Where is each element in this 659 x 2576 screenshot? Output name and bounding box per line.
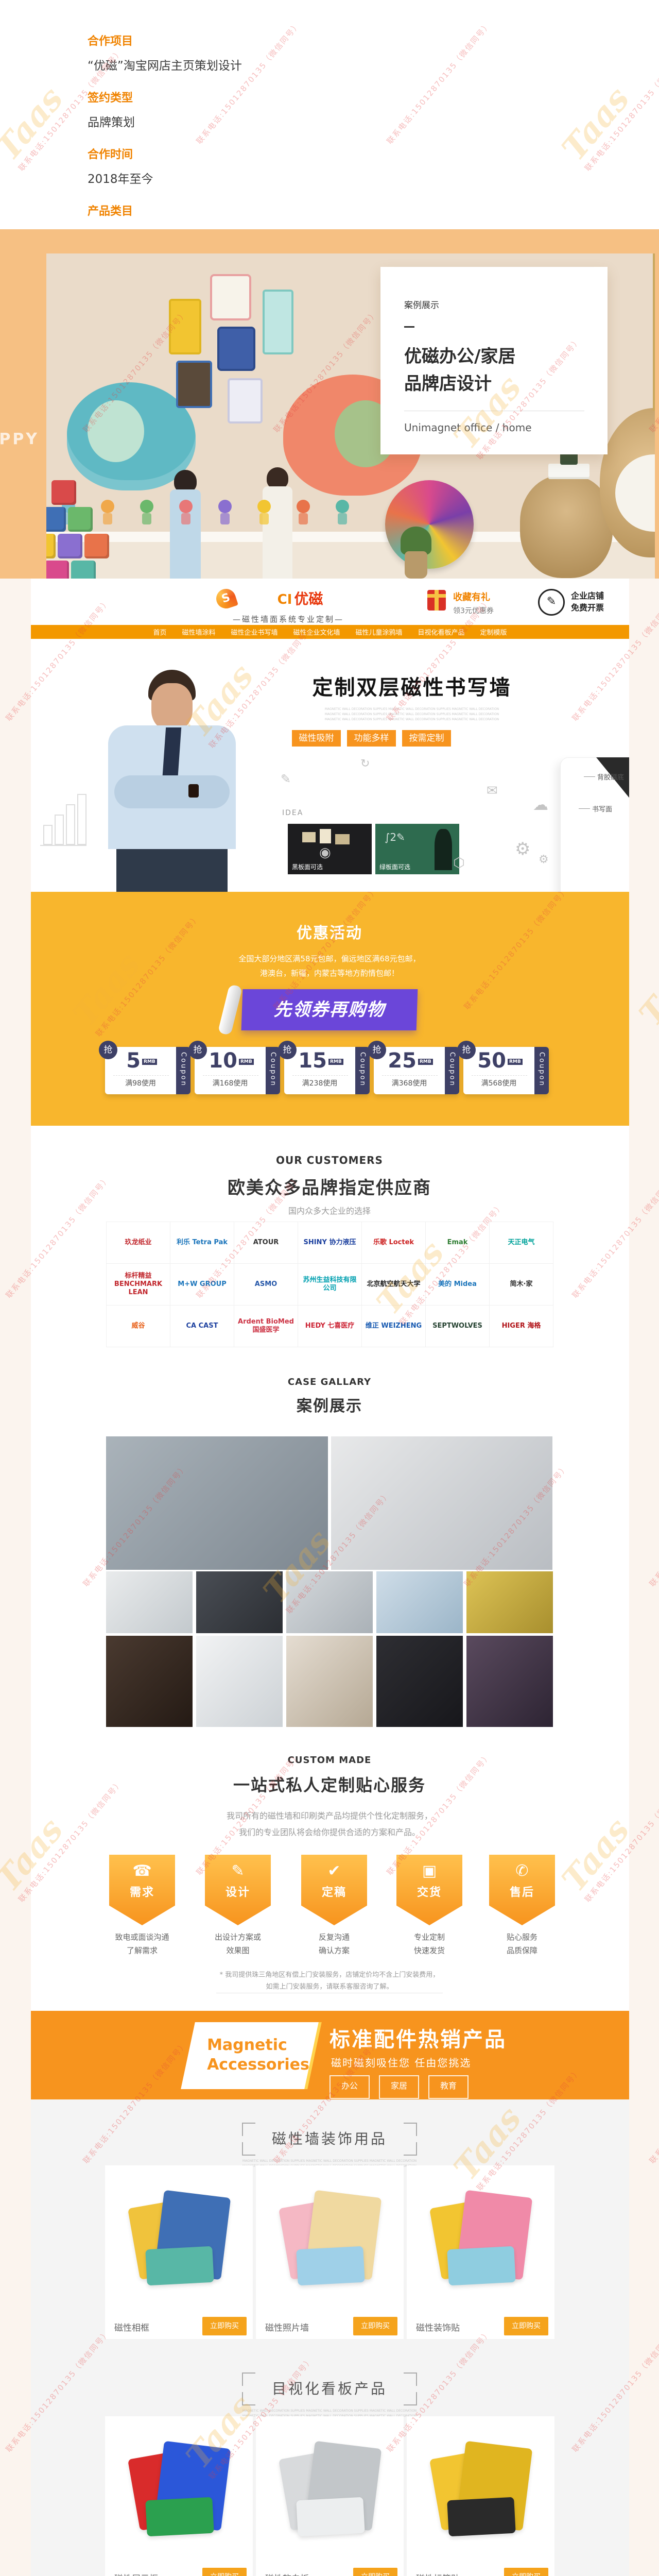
customer-logo: Ardent BioMed 国盛医学 <box>234 1306 298 1347</box>
logo-mark-icon: S <box>214 586 238 611</box>
store-promo-line2: 免费开票 <box>571 602 604 614</box>
coupon-amount: 5RMB <box>113 1049 170 1073</box>
shop-header: S CI优磁 —磁性墙面系统专业定制— 收藏有礼 领3元优惠券 ✎ 企业店铺 免… <box>31 579 629 625</box>
product-caption: 磁性软白板立即购买 <box>256 2564 404 2576</box>
product-name: 磁性照片墙 <box>265 2320 309 2333</box>
case-card-title-line2: 品牌店设计 <box>404 370 584 398</box>
product-section-title: 磁性墙装饰用品 <box>242 2123 417 2156</box>
customer-logo-text: 利乐 Tetra Pak <box>177 1239 228 1247</box>
kid-drawing-figure <box>142 513 151 524</box>
toy-block <box>46 561 69 579</box>
coupon-divider <box>292 1075 348 1076</box>
deco-line: MAGNETIC WALL DECORATION SUPPLIES MAGNET… <box>196 2159 463 2164</box>
gallery-photo <box>376 1571 463 1633</box>
coupon-condition: 满238使用 <box>289 1078 350 1088</box>
kid-drawing-figure <box>220 513 230 524</box>
process-step-desc: 贴心服务品质保障 <box>474 1931 570 1957</box>
accessories-subtitle: 磁时磁刻吸住您 任由您挑选 <box>331 2055 471 2070</box>
customer-logo-text: 简木·家 <box>510 1280 533 1289</box>
customer-logo: 天正电气 <box>490 1222 553 1264</box>
kid-drawing-figure <box>257 500 271 513</box>
case-card: 案例展示 优磁办公/家居 品牌店设计 Unimagnet office / ho… <box>380 267 608 454</box>
customer-logo-text: CA CAST <box>186 1322 218 1330</box>
wall-frame <box>176 361 212 408</box>
toy-block <box>46 534 56 558</box>
coupon-currency: RMB <box>508 1059 523 1065</box>
gallery-title-en: CASE GALLARY <box>0 1377 659 1387</box>
customer-logo-text: SEPTWOLVES <box>432 1322 482 1330</box>
coupon-divider <box>203 1075 258 1076</box>
coupon-side-text: Coupon <box>448 1052 456 1087</box>
product-name: 磁性展示框 <box>114 2571 158 2576</box>
toy-block <box>46 507 66 532</box>
customers-subtitle: 国内众多大企业的选择 <box>0 1204 659 1219</box>
nav-item[interactable]: 磁性企业文化墙 <box>293 627 340 637</box>
process-step-desc: 反复沟通确认方案 <box>286 1931 382 1957</box>
customer-logo-text: HEDY 七喜医疗 <box>305 1322 355 1330</box>
buy-now-button[interactable]: 立即购买 <box>353 2568 397 2576</box>
process-step-desc: 致电或面谈沟通了解需求 <box>94 1931 190 1957</box>
sketch-doodle-icon: ✎ <box>281 772 291 786</box>
wall-frame <box>210 274 251 320</box>
toy-block <box>58 534 82 558</box>
toy-block <box>68 507 93 532</box>
process-step-desc-line: 贴心服务 <box>474 1931 570 1944</box>
deals-title: 优惠活动 <box>0 920 659 943</box>
process-step-desc-line: 效果图 <box>190 1944 286 1958</box>
custom-title-cn: 一站式私人定制贴心服务 <box>0 1772 659 1796</box>
process-step-label: 定稿 <box>301 1883 367 1900</box>
wicker-stool <box>520 475 613 578</box>
customer-logo-text: 玖龙纸业 <box>125 1239 151 1247</box>
pinwheel-decor <box>385 480 474 569</box>
coupon-side-text: Coupon <box>269 1052 277 1087</box>
gallery-photo <box>196 1636 283 1727</box>
customer-logo-text: 天正电气 <box>508 1239 534 1247</box>
product-name: 磁性标签贴 <box>416 2571 460 2576</box>
intro-label: 合作项目 <box>88 32 551 48</box>
product-name: 磁性装饰贴 <box>416 2320 460 2333</box>
intro-label: 合作时间 <box>88 145 551 162</box>
customer-logo: Emak <box>426 1222 490 1264</box>
coupon-side-band: Coupon <box>176 1047 190 1094</box>
page: 合作项目“优磁”淘宝网店主页策划设计签约类型品牌策划合作时间2018年至今产品类… <box>0 0 659 2576</box>
section-divider <box>216 1993 443 1993</box>
customer-logo-text: Ardent BioMed 国盛医学 <box>236 1318 296 1335</box>
pencil-icon: ✎ <box>205 1862 271 1880</box>
gallery-photo <box>286 1571 373 1633</box>
stool-books <box>548 464 589 477</box>
product-name: 磁性软白板 <box>265 2571 309 2576</box>
customer-logo: 标杆精益 BENCHMARK LEAN <box>107 1264 170 1306</box>
intro-rows: 合作项目“优磁”淘宝网店主页策划设计签约类型品牌策划合作时间2018年至今产品类… <box>88 32 551 243</box>
kid-drawing-figure <box>179 500 193 513</box>
header-promo-store[interactable]: ✎ 企业店铺 免费开票 <box>538 589 604 616</box>
customer-logo: 简木·家 <box>490 1264 553 1306</box>
customer-logo-text: 北京航空航天大学 <box>367 1280 420 1289</box>
case-card-subtitle: Unimagnet office / home <box>404 421 584 434</box>
invoice-doc-icon: ✎ <box>538 589 565 616</box>
gift-icon <box>427 590 446 611</box>
accessories-tab[interactable]: 教育 <box>428 2075 469 2099</box>
wall-frame <box>217 327 255 371</box>
customer-logo: HIGER 海格 <box>490 1306 553 1347</box>
intro-value: 2018年至今 <box>88 169 551 187</box>
sketch-doodle-icon: ◉ <box>319 845 331 860</box>
coupon-currency: RMB <box>239 1059 254 1065</box>
customers-title-cn: 欧美众多品牌指定供应商 <box>0 1174 659 1199</box>
product-image <box>256 2416 404 2564</box>
accessories-en-box: MagneticAccessories <box>181 2022 319 2089</box>
intro-label: 签约类型 <box>88 89 551 105</box>
shop-logo[interactable]: S CI优磁 —磁性墙面系统专业定制— <box>216 588 360 624</box>
coupon-currency: RMB <box>142 1059 157 1065</box>
kid-figure <box>267 467 288 489</box>
intro-value: 品牌策划 <box>88 112 551 130</box>
main-nav: 首页磁性墙涂料磁性企业书写墙磁性企业文化墙磁性儿童涂鸦墙目视化看板产品定制模版 <box>31 625 629 639</box>
customer-logo-text: M+W GROUP <box>178 1280 227 1289</box>
coupon-condition: 满368使用 <box>379 1078 440 1088</box>
customer-logo: SEPTWOLVES <box>426 1306 490 1347</box>
hero-doodle-happy: HAPPY <box>0 430 39 448</box>
product-image <box>105 2165 253 2313</box>
coupon-amount: 10RMB <box>203 1049 259 1073</box>
customer-logo-text: 威谷 <box>131 1322 145 1330</box>
process-step-desc-line: 快速发货 <box>381 1944 477 1958</box>
product-art-shape <box>145 2497 214 2537</box>
coupon-amount: 50RMB <box>472 1049 528 1073</box>
kid-drawing-figure <box>299 513 308 524</box>
check-icon: ✔ <box>301 1862 367 1880</box>
customer-logo-text: 维正 WEIZHENG <box>366 1322 422 1330</box>
process-step-label: 售后 <box>489 1883 555 1900</box>
install-note-line1: * 我司提供珠三角地区有偿上门安装服务，店铺定价均不含上门安装费用， <box>0 1969 659 1979</box>
deals-line1: 全国大部分地区满58元包邮，偏远地区满68元包邮， <box>0 952 659 965</box>
coupon-divider <box>382 1075 438 1076</box>
customer-logo: 苏州生益科技有限公司 <box>298 1264 362 1306</box>
intro-label: 产品类目 <box>88 202 551 218</box>
gallery-photo <box>106 1571 193 1633</box>
product-image <box>256 2165 404 2313</box>
process-step-desc: 专业定制快速发货 <box>381 1931 477 1957</box>
kid-drawing-figure <box>181 513 190 524</box>
product-art-shape <box>296 2497 365 2537</box>
coupon-card[interactable]: 抢Coupon15RMB满238使用 <box>284 1047 370 1094</box>
store-promo-line1: 企业店铺 <box>571 590 604 602</box>
buy-now-button[interactable]: 立即购买 <box>353 2317 397 2335</box>
coupon-condition: 满168使用 <box>200 1078 261 1088</box>
hero-section: Birthday HAPPY ✶ ❀ ᴍᴍ <box>0 229 659 579</box>
accessories-tab[interactable]: 家居 <box>379 2075 419 2099</box>
customer-logo: 乐歌 Loctek <box>362 1222 426 1264</box>
kid-drawing-figure <box>218 500 232 513</box>
customer-logo: 玖龙纸业 <box>107 1222 170 1264</box>
custom-subtitle-line2: 我们的专业团队将会给你提供合适的方案和产品。 <box>0 1825 659 1840</box>
coupon-side-band: Coupon <box>445 1047 459 1094</box>
gallery-photo <box>331 1436 552 1570</box>
plant-decor <box>401 527 431 555</box>
buy-now-button[interactable]: 立即购买 <box>504 2317 548 2335</box>
logo-cn-text: 优磁 <box>294 590 323 607</box>
coupon-condition: 满98使用 <box>110 1078 171 1088</box>
gift-promo-title: 收藏有礼 <box>453 590 494 603</box>
customers-title-en: OUR CUSTOMERS <box>0 1154 659 1166</box>
buy-now-button[interactable]: 立即购买 <box>504 2568 548 2576</box>
coupon-card[interactable]: 抢Coupon5RMB满98使用 <box>105 1047 190 1094</box>
ribbon-text: 先领券再购物 <box>241 989 418 1030</box>
wall-frame <box>263 290 293 354</box>
box-icon: ▣ <box>396 1862 462 1880</box>
customer-logo: SHINY 协力液压 <box>298 1222 362 1264</box>
process-step-desc-line: 反复沟通 <box>286 1931 382 1944</box>
nav-item[interactable]: 磁性儿童涂鸦墙 <box>356 627 403 637</box>
gift-promo-sub: 领3元优惠券 <box>453 605 494 616</box>
accessories-tab[interactable]: 办公 <box>329 2075 370 2099</box>
case-card-dash <box>404 326 414 328</box>
toy-block <box>51 480 76 505</box>
product-caption: 磁性相框立即购买 <box>105 2313 253 2339</box>
product-art-shape <box>447 2246 515 2286</box>
gallery-photo <box>106 1436 328 1570</box>
product-image <box>407 2416 554 2564</box>
process-step-desc-line: 了解需求 <box>94 1944 190 1958</box>
coupon-card[interactable]: 抢Coupon50RMB满568使用 <box>463 1047 549 1094</box>
coupon-divider <box>113 1075 169 1076</box>
coupon-amount: 25RMB <box>382 1049 439 1073</box>
kid-drawing-figure <box>336 500 349 513</box>
process-step-label: 需求 <box>109 1883 175 1900</box>
customer-logo-text: HIGER 海格 <box>502 1322 541 1330</box>
page-margin-left <box>0 579 31 2576</box>
product-image <box>105 2416 253 2564</box>
chair-chain <box>653 253 655 411</box>
coupon-card[interactable]: 抢Coupon25RMB满368使用 <box>374 1047 459 1094</box>
product-caption: 磁性标签贴立即购买 <box>407 2564 554 2576</box>
nav-item[interactable]: 定制模版 <box>480 627 507 637</box>
install-note-line2: 如需上门安装服务，请联系客服咨询了解。 <box>0 1981 659 1991</box>
process-step-desc-line: 出设计方案或 <box>190 1931 286 1944</box>
gallery-photo <box>466 1571 553 1633</box>
product-image <box>407 2165 554 2313</box>
gallery-photo <box>286 1636 373 1727</box>
product-caption: 磁性展示框立即购买 <box>105 2564 253 2576</box>
intro-value: “优磁”淘宝网店主页策划设计 <box>88 56 551 73</box>
nav-item[interactable]: 目视化看板产品 <box>418 627 465 637</box>
sketch-doodle-icon: ☁ <box>533 796 548 814</box>
sketch-doodle-icon: ✉ <box>487 783 498 799</box>
process-step-desc-line: 专业定制 <box>381 1931 477 1944</box>
customer-logo-text: Emak <box>447 1239 468 1247</box>
customer-logo-text: 苏州生益科技有限公司 <box>300 1276 359 1293</box>
kid-drawing-figure <box>338 513 347 524</box>
vase-decor <box>405 551 427 579</box>
custom-subtitle-line1: 我司所有的磁性墙和印刷类产品均提供个性化定制服务， <box>0 1808 659 1824</box>
sketch-doodle-icon: ⚙ <box>539 853 549 866</box>
customer-logo: HEDY 七喜医疗 <box>298 1306 362 1347</box>
customer-logo: 利乐 Tetra Pak <box>170 1222 234 1264</box>
coupon-side-text: Coupon <box>180 1052 187 1087</box>
customer-logo-text: 美的 Midea <box>438 1280 477 1289</box>
gallery-title-cn: 案例展示 <box>0 1393 659 1416</box>
nav-item[interactable]: 磁性墙涂料 <box>182 627 215 637</box>
kid-drawing-figure <box>297 500 310 513</box>
customer-logo: CA CAST <box>170 1306 234 1347</box>
product-section-title-text: 磁性墙装饰用品 <box>242 2123 417 2156</box>
nav-item[interactable]: 磁性企业书写墙 <box>231 627 278 637</box>
deals-line2: 港澳台，新疆，内蒙古等地方酌情包邮！ <box>0 967 659 980</box>
toy-block <box>71 561 96 579</box>
coupon-ribbon[interactable]: 先领券再购物 <box>241 989 418 1030</box>
accessories-title: 标准配件热销产品 <box>329 2023 507 2053</box>
custom-title-en: CUSTOM MADE <box>0 1755 659 1766</box>
gallery-photo <box>466 1636 553 1727</box>
customer-logo: 威谷 <box>107 1306 170 1347</box>
process-step-desc: 出设计方案或效果图 <box>190 1931 286 1957</box>
gallery-photo <box>106 1636 193 1727</box>
product-art-shape <box>296 2246 365 2286</box>
product-name: 磁性相框 <box>114 2320 149 2333</box>
product-caption: 磁性照片墙立即购买 <box>256 2313 404 2339</box>
wall-frame <box>169 299 201 354</box>
customer-logo: 维正 WEIZHENG <box>362 1306 426 1347</box>
customer-logo: M+W GROUP <box>170 1264 234 1306</box>
service-icon: ✆ <box>489 1862 555 1880</box>
case-card-title-line1: 优磁办公/家居 <box>404 343 584 370</box>
coupon-side-text: Coupon <box>538 1052 546 1087</box>
product-section-title-text: 目视化看板产品 <box>242 2372 417 2405</box>
intro-section: 合作项目“优磁”淘宝网店主页策划设计签约类型品牌策划合作时间2018年至今产品类… <box>0 0 659 229</box>
product-caption: 磁性装饰贴立即购买 <box>407 2313 554 2339</box>
customer-logo-text: 乐歌 Loctek <box>373 1239 414 1247</box>
main-banner: 定制双层磁性书写墙 MAGNETIC WALL DECORATION SUPPL… <box>31 639 629 892</box>
elephant-teal-ear <box>88 400 144 462</box>
logo-tagline: —磁性墙面系统专业定制— <box>216 614 360 624</box>
customer-logo: ATOUR <box>234 1222 298 1264</box>
coupon-card[interactable]: 抢Coupon10RMB满168使用 <box>195 1047 280 1094</box>
sketch-doodle-icon: ⬡ <box>453 855 465 871</box>
coupon-amount: 15RMB <box>292 1049 349 1073</box>
deco-line: MAGNETIC WALL DECORATION SUPPLIES MAGNET… <box>196 2409 463 2414</box>
kid-drawing-figure <box>140 500 153 513</box>
wall-frame <box>228 378 263 423</box>
sketch-doodle-icon: ⚙ <box>515 839 530 859</box>
page-margin-right <box>629 579 659 2576</box>
coupon-side-band: Coupon <box>266 1047 280 1094</box>
product-art-shape <box>447 2497 515 2537</box>
process-step-desc-line: 品质保障 <box>474 1944 570 1958</box>
customer-logo: 美的 Midea <box>426 1264 490 1306</box>
coupon-side-text: Coupon <box>359 1052 367 1087</box>
customer-logo-text: SHINY 协力液压 <box>304 1239 356 1247</box>
customer-logo-grid: 玖龙纸业利乐 Tetra PakATOURSHINY 协力液压乐歌 Loctek… <box>106 1222 553 1347</box>
buy-now-button[interactable]: 立即购买 <box>202 2317 247 2335</box>
coupon-side-band: Coupon <box>534 1047 549 1094</box>
header-promo-gift[interactable]: 收藏有礼 领3元优惠券 <box>427 590 494 616</box>
customer-logo-text: ATOUR <box>253 1239 279 1247</box>
gallery-photo <box>376 1636 463 1727</box>
sketch-doodle-icon: ↻ <box>360 757 370 770</box>
case-card-tag: 案例展示 <box>404 298 584 311</box>
accessories-en1: Magnetic <box>207 2036 287 2054</box>
customer-logo-text: 标杆精益 BENCHMARK LEAN <box>109 1272 168 1297</box>
buy-now-button[interactable]: 立即购买 <box>202 2568 247 2576</box>
toy-block <box>84 534 109 558</box>
process-step-desc-line: 确认方案 <box>286 1944 382 1958</box>
case-card-divider <box>404 411 584 411</box>
gallery-photo <box>196 1571 283 1633</box>
coupon-divider <box>472 1075 527 1076</box>
customer-logo: ASMO <box>234 1264 298 1306</box>
customer-logo: 北京航空航天大学 <box>362 1264 426 1306</box>
coupon-currency: RMB <box>328 1059 343 1065</box>
phone-icon: ☎ <box>109 1862 175 1880</box>
product-art-shape <box>145 2246 214 2286</box>
coupon-side-band: Coupon <box>355 1047 370 1094</box>
nav-item[interactable]: 首页 <box>153 627 166 637</box>
logo-ci-text: CI <box>278 592 292 607</box>
kid-drawing-figure <box>259 513 269 524</box>
process-step-label: 交货 <box>396 1883 462 1900</box>
accessories-en2: Accessories <box>207 2056 309 2074</box>
coupon-condition: 满568使用 <box>469 1078 529 1088</box>
customer-logo-text: ASMO <box>255 1280 277 1289</box>
coupon-currency: RMB <box>418 1059 433 1065</box>
process-step-desc-line: 致电或面谈沟通 <box>94 1931 190 1944</box>
product-section-title: 目视化看板产品 <box>242 2372 417 2405</box>
toy-blocks <box>46 480 113 579</box>
process-step-label: 设计 <box>205 1883 271 1900</box>
